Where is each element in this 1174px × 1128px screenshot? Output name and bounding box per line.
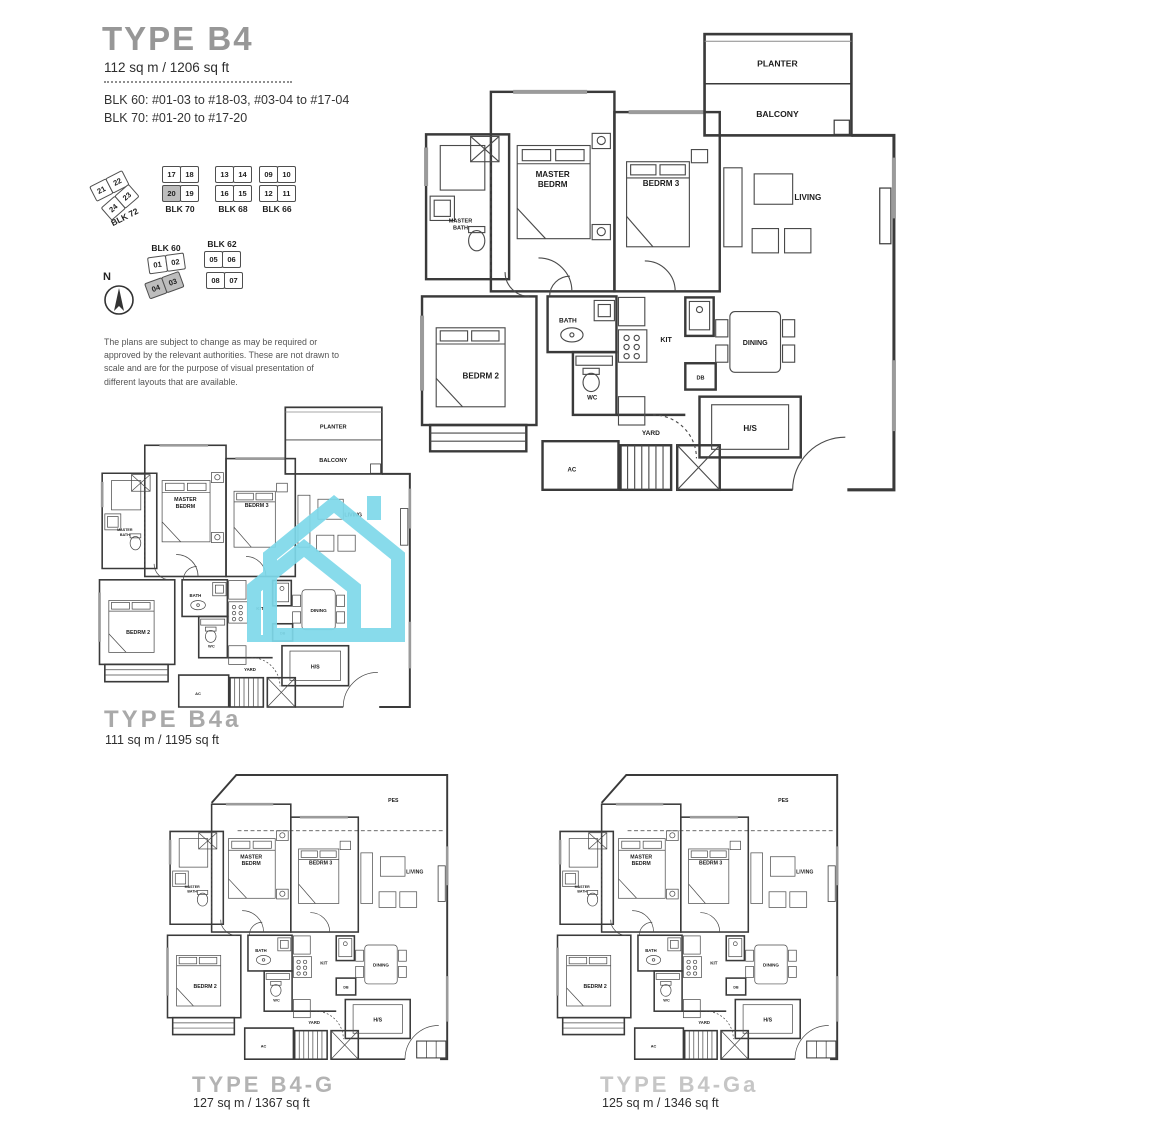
block-label: BLK 70 bbox=[165, 204, 194, 214]
north-compass-icon: N bbox=[100, 268, 136, 320]
floorplan-page: MASTER BEDRM BEDRM 3 LIVING BEDRM 2 BATH… bbox=[0, 0, 1174, 1128]
block-68: 13 14 16 15 BLK 68 bbox=[215, 166, 251, 214]
plan-area-b4g: 127 sq m / 1367 sq ft bbox=[193, 1096, 310, 1110]
unit-cell: 08 bbox=[206, 272, 225, 289]
unit-cell: 11 bbox=[277, 185, 296, 202]
block-label: BLK 62 bbox=[207, 239, 236, 249]
unit-cell: 15 bbox=[233, 185, 252, 202]
unit-cell: 19 bbox=[180, 185, 199, 202]
plan-title-b4a: TYPE B4a bbox=[104, 706, 241, 734]
floorplan-type-b4g bbox=[166, 762, 474, 1067]
compass-n-label: N bbox=[103, 271, 111, 283]
block-info-line2: BLK 70: #01-20 to #17-20 bbox=[104, 109, 349, 127]
unit-cell-highlighted: 20 bbox=[162, 185, 181, 202]
block-60: BLK 60 01 02 04 03 bbox=[148, 243, 184, 291]
divider-line bbox=[104, 81, 292, 83]
plan-title-b4ga: TYPE B4-Ga bbox=[600, 1072, 758, 1098]
unit-cell: 17 bbox=[162, 166, 181, 183]
unit-cell: 13 bbox=[215, 166, 234, 183]
plan-title-b4g: TYPE B4-G bbox=[192, 1072, 335, 1098]
floorplan-type-b4ga bbox=[556, 762, 864, 1067]
compass: N bbox=[100, 268, 136, 320]
page-title: TYPE B4 bbox=[102, 20, 254, 58]
unit-cell: 10 bbox=[277, 166, 296, 183]
unit-cell: 02 bbox=[165, 252, 186, 271]
unit-cell: 06 bbox=[222, 251, 241, 268]
block-label: BLK 60 bbox=[151, 243, 180, 253]
unit-cell: 12 bbox=[259, 185, 278, 202]
block-info-line1: BLK 60: #01-03 to #18-03, #03-04 to #17-… bbox=[104, 91, 349, 109]
block-62: BLK 62 05 06 08 07 bbox=[204, 239, 240, 287]
plan-area-b4ga: 125 sq m / 1346 sq ft bbox=[602, 1096, 719, 1110]
floorplan-type-b4 bbox=[420, 26, 900, 502]
unit-cell: 05 bbox=[204, 251, 223, 268]
block-info: BLK 60: #01-03 to #18-03, #03-04 to #17-… bbox=[104, 91, 349, 127]
plan-area-b4a: 111 sq m / 1195 sq ft bbox=[105, 733, 219, 747]
block-70: 17 18 20 19 BLK 70 bbox=[162, 166, 198, 214]
block-key-diagram: 21 22 24 23 BLK 72 17 18 20 19 bbox=[98, 160, 343, 338]
block-label: BLK 66 bbox=[262, 204, 291, 214]
block-label: BLK 68 bbox=[218, 204, 247, 214]
disclaimer-text: The plans are subject to change as may b… bbox=[104, 336, 344, 389]
unit-cell: 09 bbox=[259, 166, 278, 183]
unit-area: 112 sq m / 1206 sq ft bbox=[104, 60, 229, 75]
house-watermark-icon bbox=[246, 490, 414, 642]
unit-cell: 16 bbox=[215, 185, 234, 202]
unit-cell: 07 bbox=[224, 272, 243, 289]
unit-cell: 14 bbox=[233, 166, 252, 183]
block-66: 09 10 12 11 BLK 66 bbox=[259, 166, 295, 214]
block-72: 21 22 24 23 BLK 72 bbox=[89, 170, 143, 229]
unit-cell: 18 bbox=[180, 166, 199, 183]
